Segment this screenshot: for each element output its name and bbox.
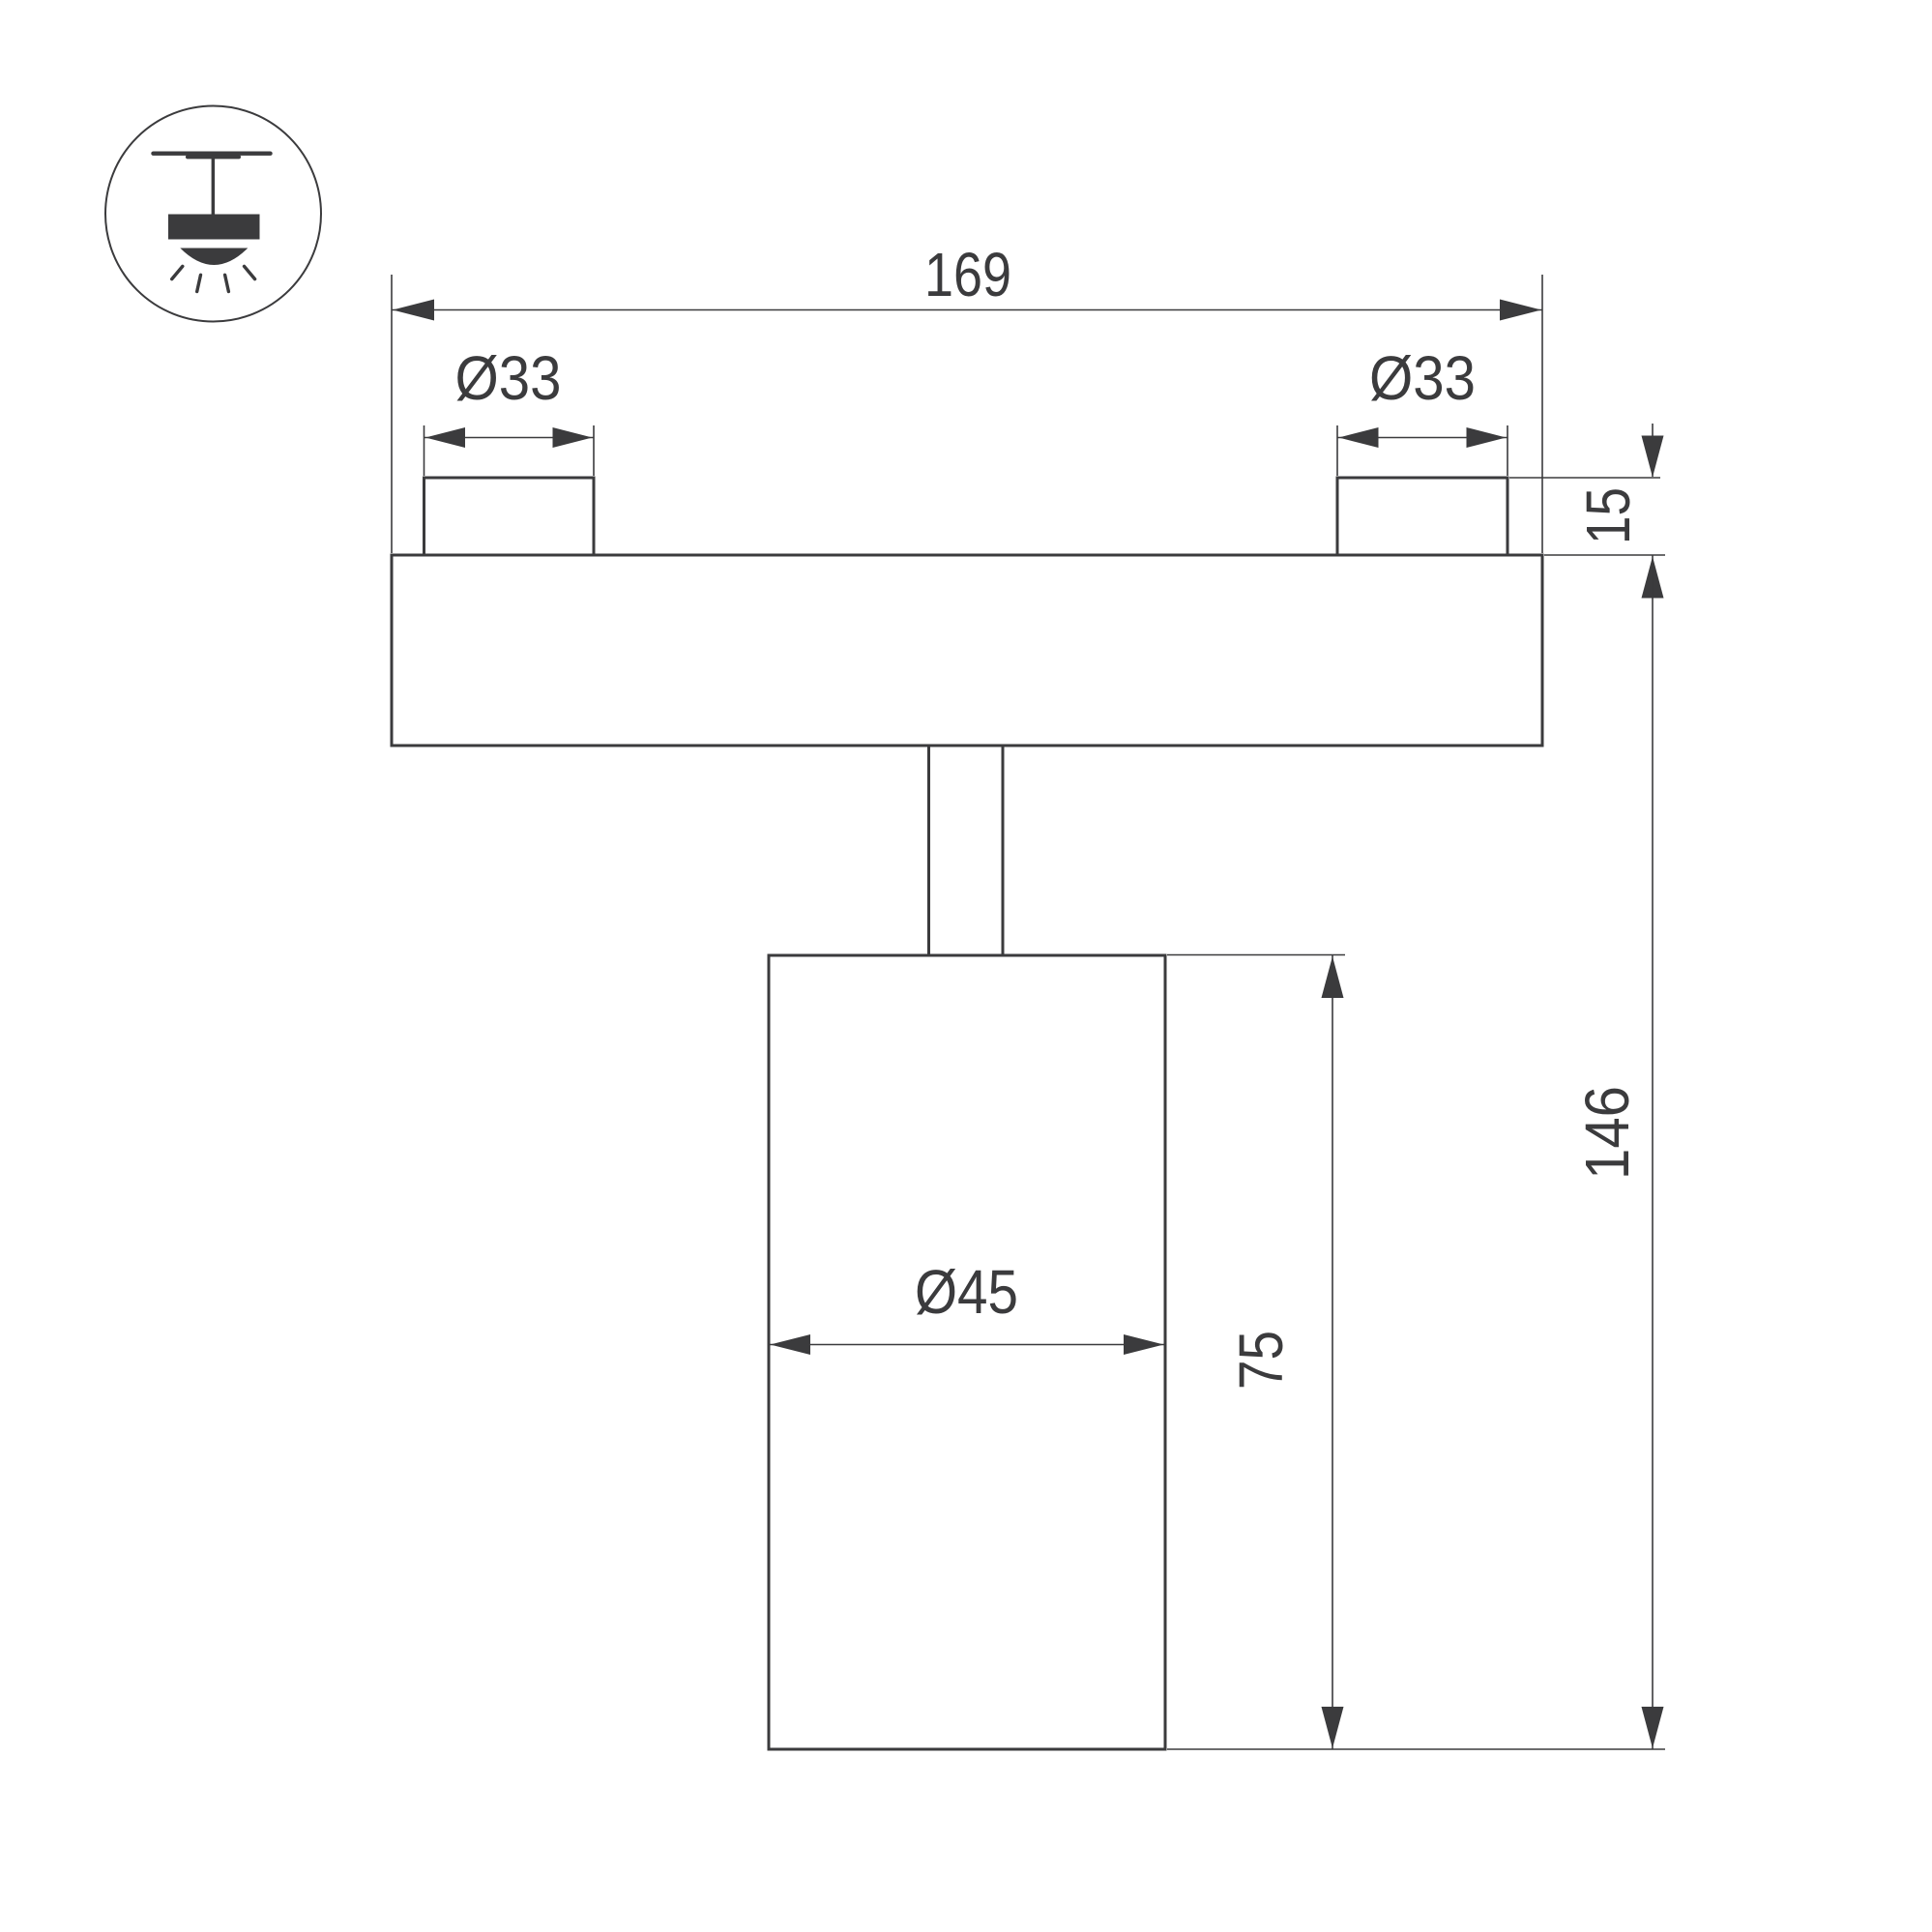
svg-text:146: 146 xyxy=(1572,1086,1642,1180)
svg-text:Ø33: Ø33 xyxy=(1369,343,1476,413)
svg-text:Ø33: Ø33 xyxy=(455,343,562,413)
svg-text:15: 15 xyxy=(1573,487,1643,544)
svg-text:Ø45: Ø45 xyxy=(915,1257,1018,1327)
svg-text:75: 75 xyxy=(1226,1331,1296,1390)
svg-text:169: 169 xyxy=(924,240,1011,309)
